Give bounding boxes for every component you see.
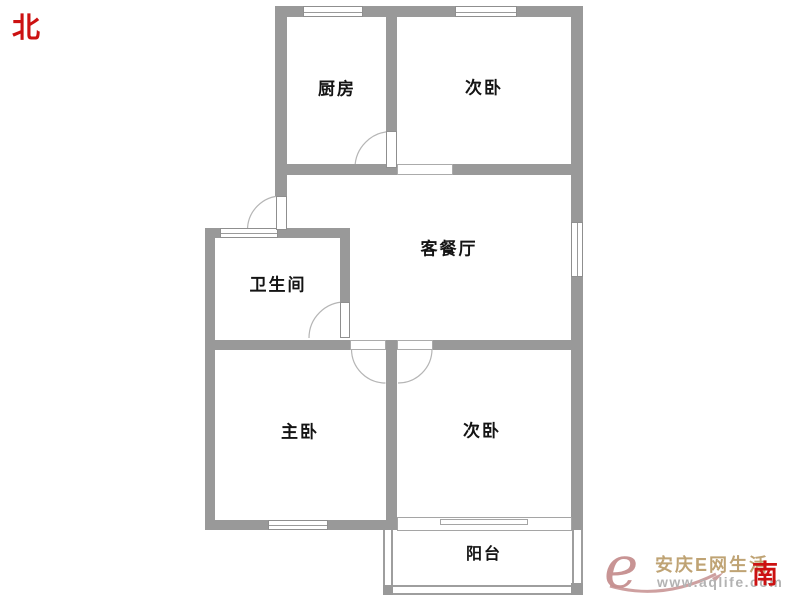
watermark-swoosh (0, 0, 800, 600)
room-label-kitchen: 厨房 (318, 75, 356, 100)
compass-south: 南 (752, 562, 778, 588)
room-label-bedroom-south: 次卧 (463, 417, 501, 442)
compass-north: 北 (12, 14, 40, 42)
room-label-living-dining: 客餐厅 (421, 235, 478, 260)
room-label-master-bedroom: 主卧 (281, 418, 319, 443)
floor-plan: 厨房 次卧 客餐厅 卫生间 主卧 次卧 阳台 北 南 e 安庆E网生活 www.… (0, 0, 800, 600)
room-label-bedroom-north: 次卧 (465, 74, 503, 99)
room-label-bathroom: 卫生间 (250, 271, 307, 296)
room-label-balcony: 阳台 (466, 540, 502, 564)
